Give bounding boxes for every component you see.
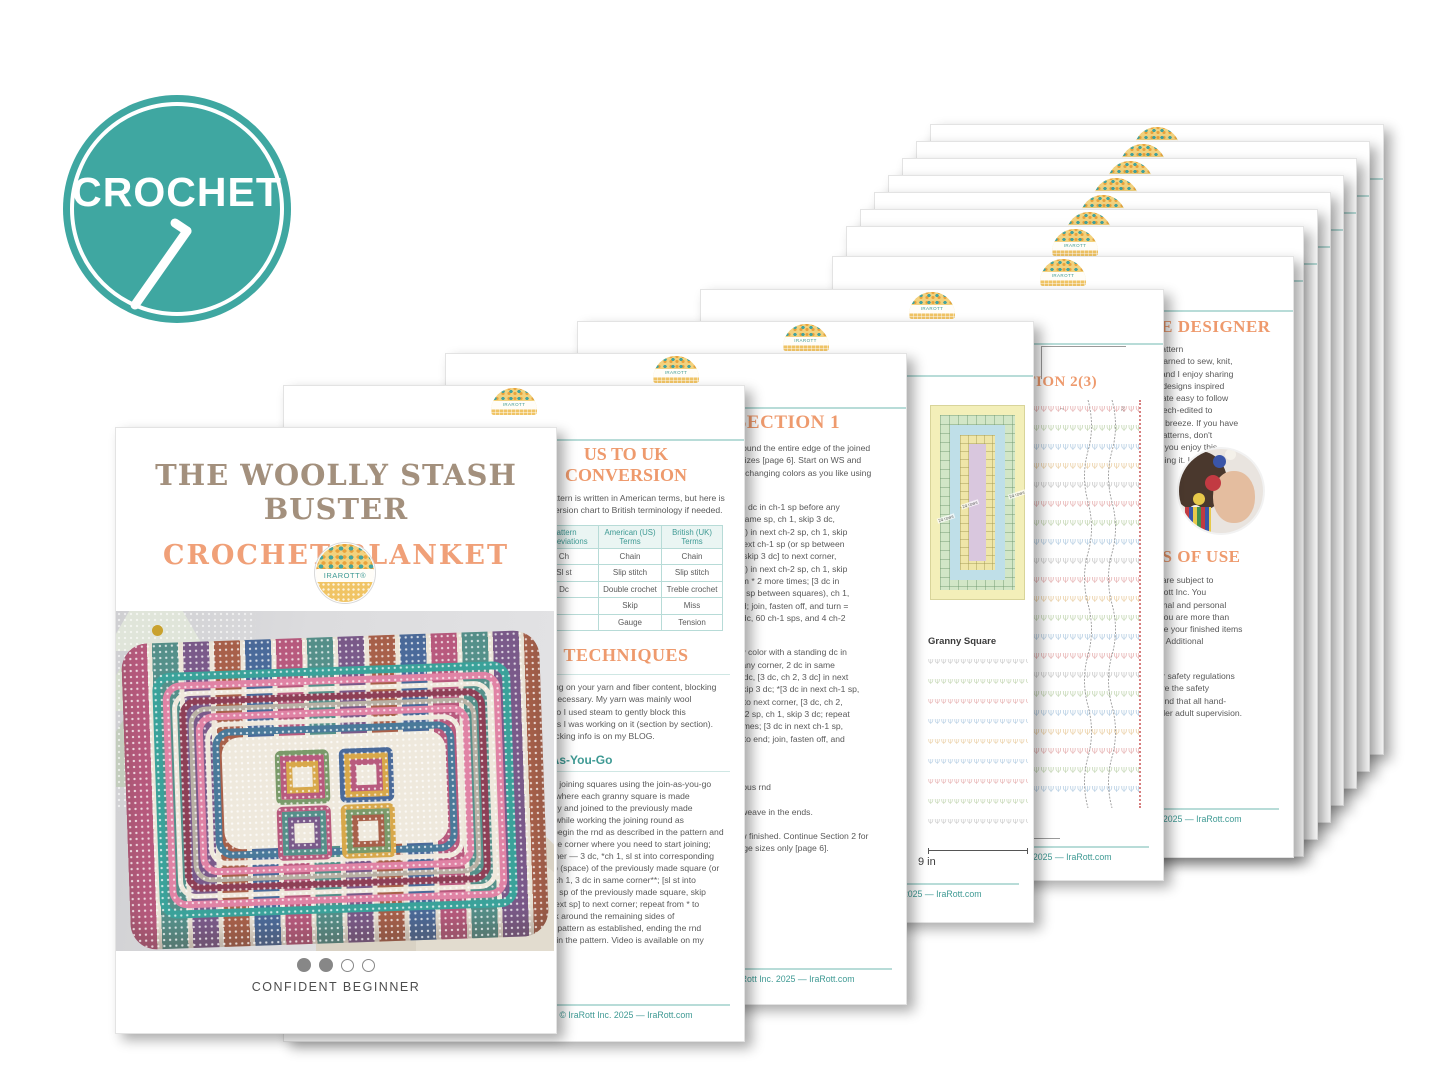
crochet-badge: CROCHET (63, 95, 291, 323)
chart-symbols-row: ΨΨΨΨΨΨΨΨΨΨΨΨΨΨΨΨΨΨΨΨΨΨΨΨΨΨΨΨΨΨ (928, 732, 1028, 752)
difficulty-dot-filled (319, 958, 333, 972)
irarott-logo-icon: IRAROTT (653, 356, 699, 383)
page-cover: THE WOOLLY STASH BUSTER CROCHET BLANKET … (115, 427, 557, 1034)
granny-square-label: Granny Square (928, 636, 1024, 647)
difficulty-dots (116, 958, 556, 977)
irarott-logo-icon: IRAROTT (1052, 229, 1098, 256)
badge-label: CROCHET (63, 169, 291, 216)
flower-blue (1213, 455, 1226, 468)
crochet-blanket (121, 630, 549, 950)
flower-white-2 (1225, 449, 1236, 460)
ornament-gold (152, 625, 163, 636)
logo-text: IRAROTT® (316, 569, 374, 582)
size-label: 9 in (918, 856, 1018, 868)
chart-symbols-row: ΨΨΨΨΨΨΨΨΨΨΨΨΨΨΨΨΨΨΨΨΨΨΨΨΨΨΨΨΨΨ (928, 752, 1028, 772)
irarott-logo-icon: IRAROTT (909, 292, 955, 319)
chart-symbols-row: ΨΨΨΨΨΨΨΨΨΨΨΨΨΨΨΨΨΨΨΨΨΨΨΨΨΨΨΨΨΨ (928, 672, 1028, 692)
cover-title-line1: THE WOOLLY STASH BUSTER (116, 458, 556, 526)
difficulty-dot-empty (341, 959, 354, 972)
designer-photo (1179, 449, 1263, 533)
product-preview-image: IRAROTT IRAROTT IRAROTT IRAROTT IRAROTT … (0, 0, 1445, 1084)
ribbons (1185, 507, 1211, 533)
chart-symbols-row: ΨΨΨΨΨΨΨΨΨΨΨΨΨΨΨΨΨΨΨΨΨΨΨΨΨΨΨΨΨΨ (928, 792, 1028, 812)
irarott-logo-icon: IRAROTT (1040, 259, 1086, 286)
chart-break-wavy-line (1081, 400, 1095, 808)
crochet-chart-granny-square: ΨΨΨΨΨΨΨΨΨΨΨΨΨΨΨΨΨΨΨΨΨΨΨΨΨΨΨΨΨΨ ΨΨΨΨΨΨΨΨΨ… (928, 652, 1028, 842)
assembly-diagram: 24 rows 24 rows 24 rows (930, 405, 1025, 600)
chart-symbols-row: ΨΨΨΨΨΨΨΨΨΨΨΨΨΨΨΨΨΨΨΨΨΨΨΨΨΨΨΨΨΨ (928, 712, 1028, 732)
difficulty-dot-filled (297, 958, 311, 972)
difficulty-label: CONFIDENT BEGINNER (116, 980, 556, 994)
chart-symbols-row: ΨΨΨΨΨΨΨΨΨΨΨΨΨΨΨΨΨΨΨΨΨΨΨΨΨΨΨΨΨΨ (928, 812, 1028, 832)
chart-symbols-row: ΨΨΨΨΨΨΨΨΨΨΨΨΨΨΨΨΨΨΨΨΨΨΨΨΨΨΨΨΨΨ (928, 772, 1028, 792)
irarott-logo-icon: IRAROTT (491, 388, 537, 415)
chart-symbols-row: ΨΨΨΨΨΨΨΨΨΨΨΨΨΨΨΨΨΨΨΨΨΨΨΨΨΨΨΨΨΨ (928, 652, 1028, 672)
irarott-logo-icon: IRAROTT® (316, 544, 374, 602)
chart-symbols-row: ΨΨΨΨΨΨΨΨΨΨΨΨΨΨΨΨΨΨΨΨΨΨΨΨΨΨΨΨΨΨ (928, 692, 1028, 712)
difficulty-dot-empty (362, 959, 375, 972)
flower-yellow (1193, 493, 1205, 505)
chart-break-wavy-line (1105, 400, 1119, 808)
cover-photo (116, 611, 554, 951)
size-measure-line (928, 850, 1028, 851)
crochet-hook-icon (117, 213, 237, 313)
irarott-logo-icon: IRAROTT (783, 324, 829, 351)
flower-red (1205, 475, 1221, 491)
conversion-table: Pattern AbbreviationsAmerican (US) Terms… (529, 525, 723, 632)
